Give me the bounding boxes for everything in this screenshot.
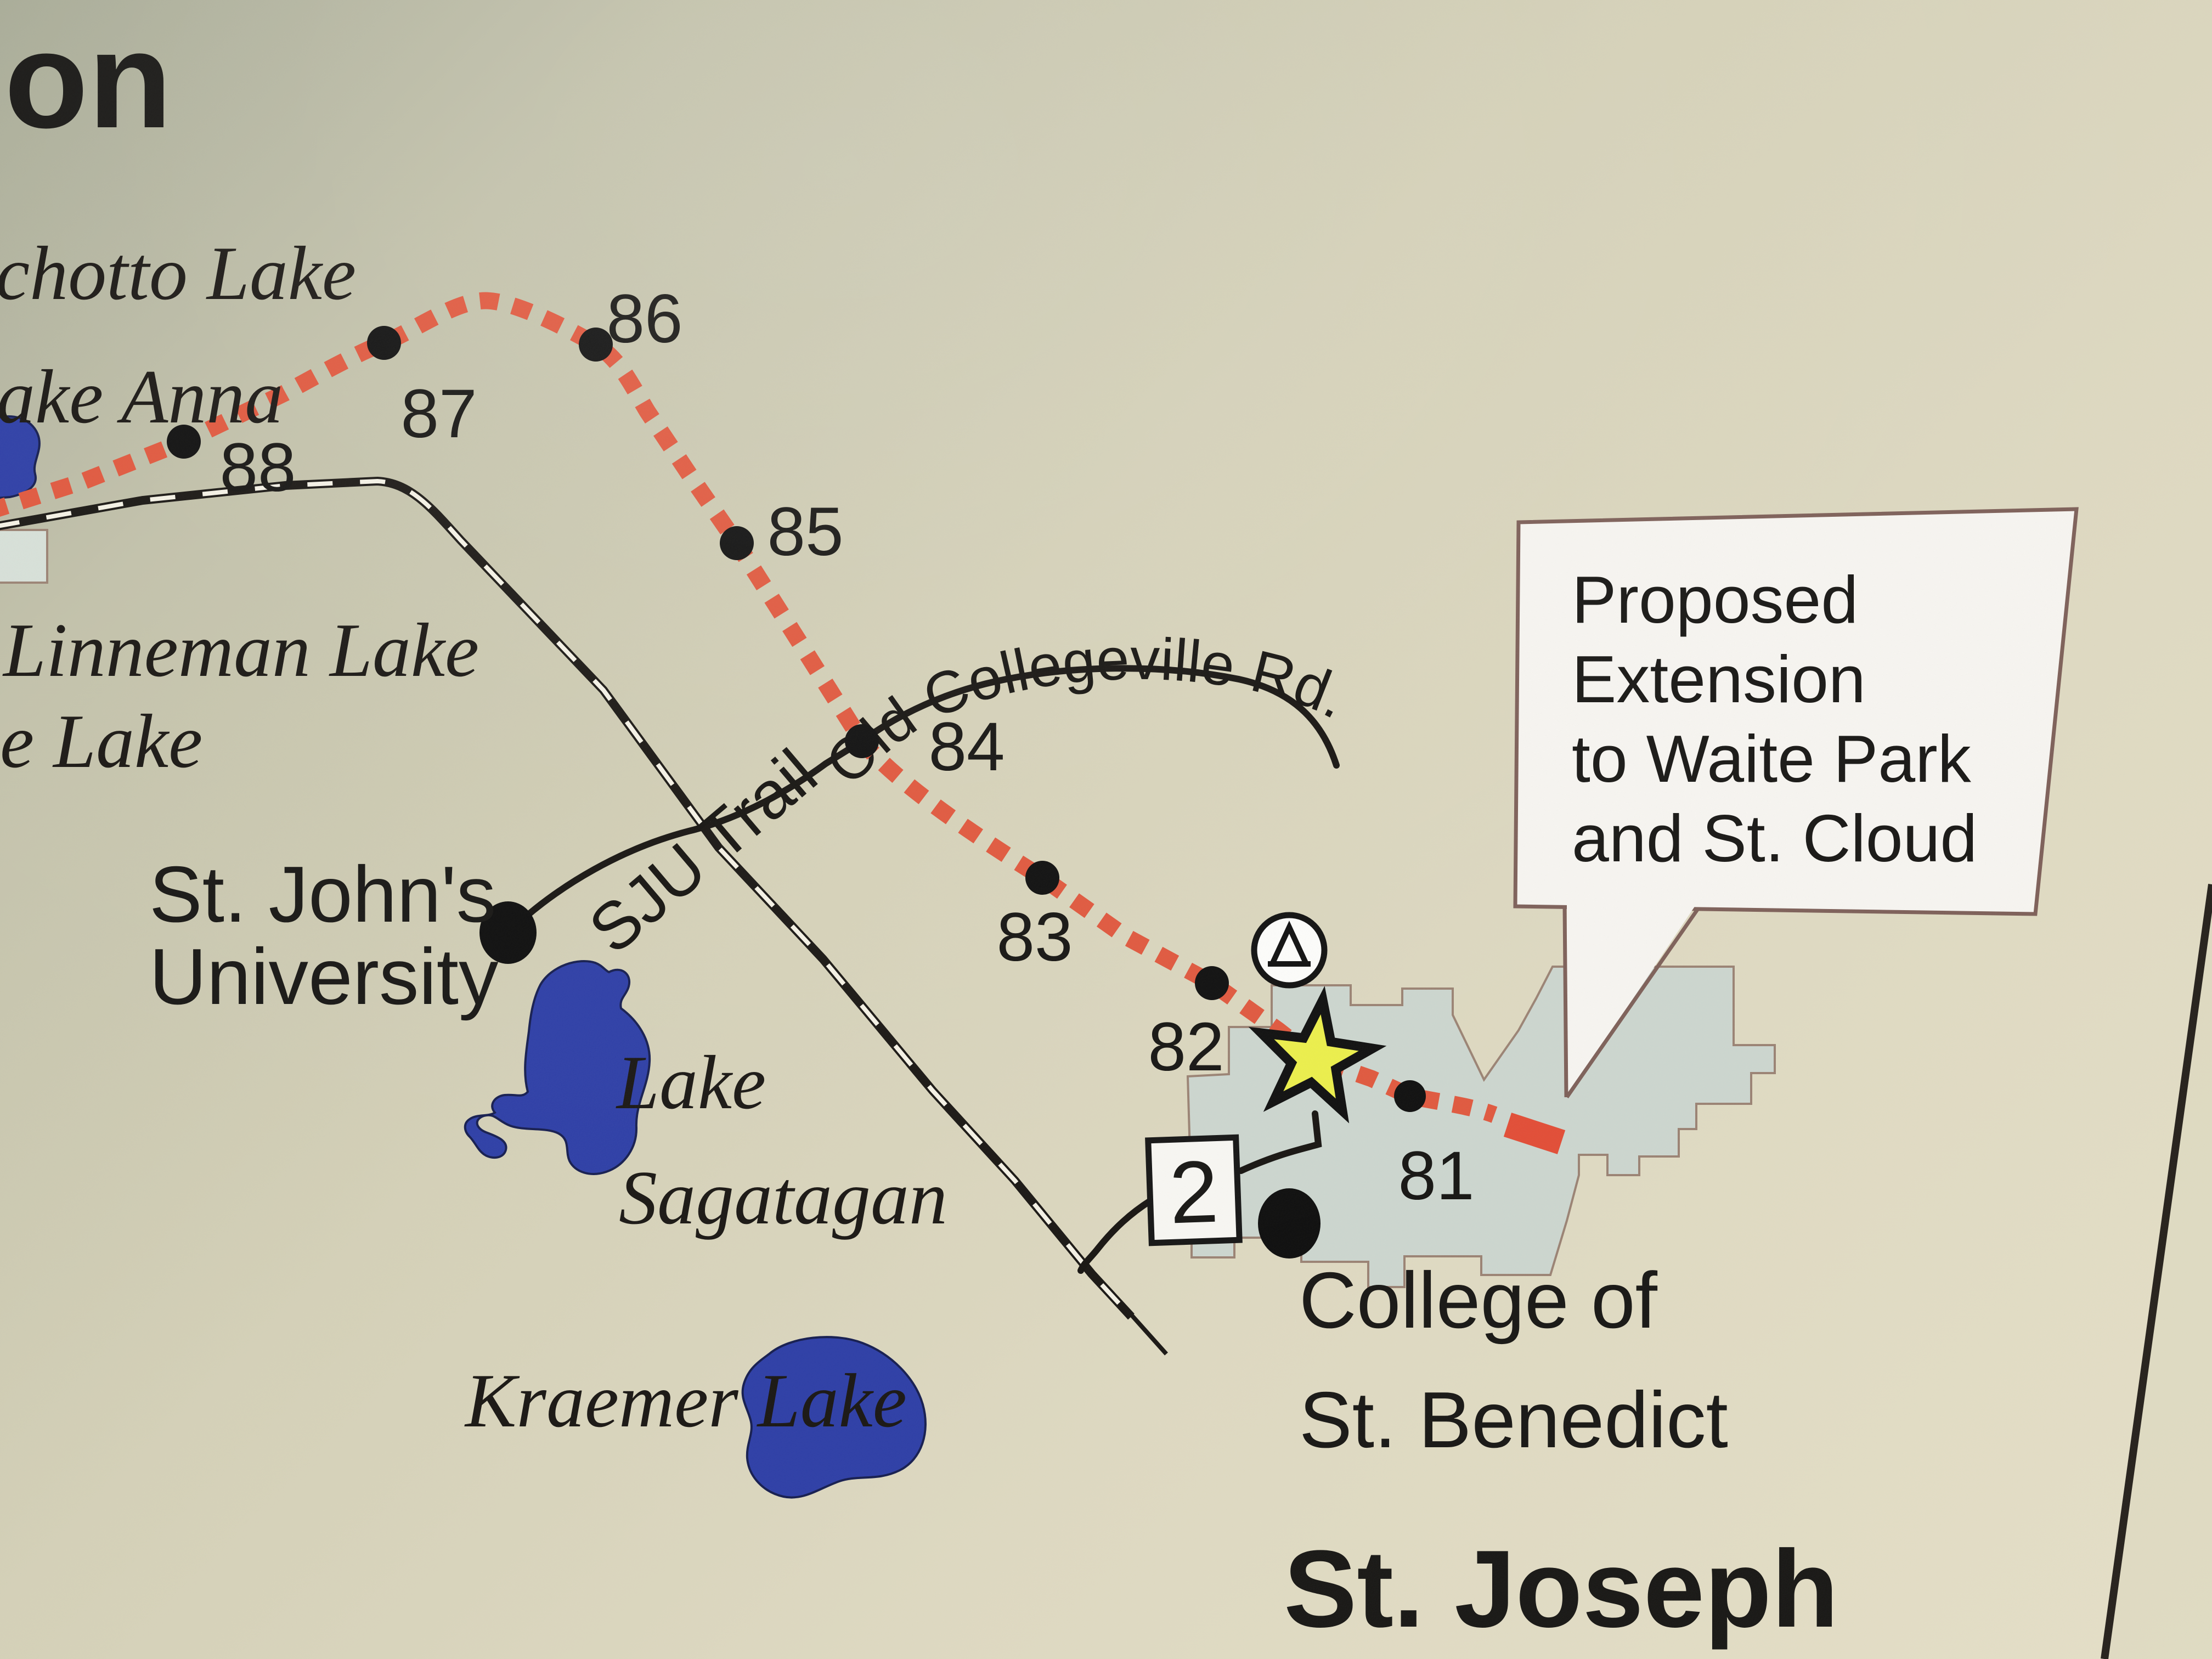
trail-map-photo: Old Collegeville Rd. SJU Trail Proposed …: [0, 0, 2212, 1659]
paper-grain-overlay: [0, 0, 2212, 1659]
